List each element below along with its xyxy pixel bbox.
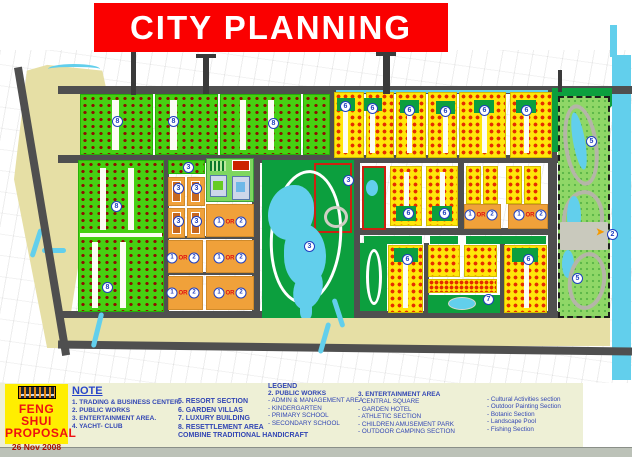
proposal-date: 26 Nov 2008 [5,442,68,452]
mixed-use-block [168,276,203,310]
text-line: 1. TRADING & BUSINESS CENTER. [72,399,181,407]
text-line: - Outdoor Painting Section [487,403,561,410]
garden-villa-block [483,166,498,204]
camping-path [366,249,382,305]
text-line: COMBINE TRADITIONAL HANDICRAFT [178,432,308,441]
text-line: - Fishing Section [487,426,561,433]
text-line: - Cultural Activities section [487,396,561,403]
school-pool [236,182,245,192]
footpath [268,100,274,150]
school-yard [213,181,223,190]
villa-green-court [512,248,538,262]
proposal-title-line1: FENG SHUI [5,403,68,427]
proposal-title-line2: PROPOSAL [5,427,68,439]
resettlement-block [303,94,330,155]
stadium-pool [366,180,378,196]
footpath [343,111,348,153]
villa-green-court [394,248,418,262]
canal-top-segment [610,25,617,57]
garden-villa-block [466,166,481,204]
proposal-box: FENG SHUI PROPOSAL 26 Nov 2008 [5,384,68,444]
tennis-court [191,181,200,202]
legend-group-entertainment: 3. ENTERTAINMENT AREA - CENTRAL SQUARE- … [358,391,455,435]
sand-strip-southeast [558,316,610,346]
footpath [407,113,412,153]
villa-green-court [516,100,536,113]
note-column-1: 1. TRADING & BUSINESS CENTER.2. PUBLIC W… [72,399,181,431]
central-park [262,160,354,318]
note-section: NOTE 1. TRADING & BUSINESS CENTER.2. PUB… [72,385,181,431]
lake-outlet [300,300,312,318]
footpath [440,172,445,206]
legend-group-resort-items: - Cultural Activities section- Outdoor P… [487,396,561,433]
central-square-ring [324,206,348,228]
garden-villa-block [464,245,497,277]
green-strip [466,236,546,244]
footpath [80,233,162,237]
resettlement-block [220,94,301,155]
ferry-arrow-icon: ➤ [596,228,604,238]
tennis-court [172,181,181,202]
kindergarten-building [232,160,250,171]
text-line: - ADMIN & MANAGEMENT AREA [268,397,363,404]
footpath [128,168,134,230]
city-planning-slide: CITY PLANNING [0,0,632,457]
legend-panel-right-gap [583,383,632,447]
text-line: - CHILDREN AMUSEMENT PARK [358,421,455,428]
luxury-building-rows [428,279,497,293]
legend-group-items: - ADMIN & MANAGEMENT AREA- KINDERGARTEN-… [268,397,363,427]
legend-group-title: 2. PUBLIC WORKS [268,390,363,397]
footpath [170,100,177,150]
text-line: - OUTDOOR CAMPING SECTION [358,428,455,435]
text-line: - SECONDARY SCHOOL [268,420,363,427]
tower-pole [383,54,390,94]
garden-villa-block [506,166,522,204]
tennis-court [172,212,181,234]
text-line: - Landscape Pool [487,418,561,425]
landscape-pond [448,297,476,310]
road-east-cross [358,228,556,235]
footpath [524,262,529,308]
garden-villa-block [428,245,460,277]
legend-group-public-works: 2. PUBLIC WORKS - ADMIN & MANAGEMENT ARE… [268,390,363,427]
villa-green-court [432,206,452,221]
villa-green-court [436,101,455,114]
villa-green-court [337,98,355,111]
footpath [524,113,529,153]
footpath [100,168,106,230]
villa-green-court [400,100,419,113]
footpath [443,114,448,153]
tennis-court [191,212,200,234]
bottom-bar [0,447,632,457]
villa-green-court [474,100,494,113]
footpath [403,262,408,308]
legend-heading: LEGEND [268,383,363,390]
tower-pole [203,56,209,94]
note-heading: NOTE [72,385,181,397]
text-line: 2. PUBLIC WORKS [72,407,181,415]
footpath [482,113,487,153]
footpath [92,242,98,308]
text-line: 3. ENTERTAINMENT AREA. [72,415,181,423]
footpath [404,172,409,206]
footpath [370,111,375,153]
footpath [120,242,126,308]
text-line: - GARDEN HOTEL [358,406,455,413]
green-strip [430,236,458,244]
mixed-use-block [508,204,548,229]
river-east [612,55,631,380]
resettlement-block [155,94,218,155]
athletic-stadium [362,166,386,230]
text-line: 4. YACHT- CLUB [72,423,181,431]
tower-pole [558,70,562,92]
mixed-use-block [206,204,254,237]
legend-section: LEGEND 2. PUBLIC WORKS - ADMIN & MANAGEM… [268,383,363,427]
footpath [240,100,246,150]
text-line: - KINDERGARTEN [268,405,363,412]
footpath [112,100,119,150]
text-line: - ATHLETIC SECTION [358,413,455,420]
tower-cap [196,54,216,58]
mixed-use-block [206,276,254,310]
villa-green-court [396,206,416,221]
camping-green [360,243,387,311]
legend-group-title: 3. ENTERTAINMENT AREA [358,391,455,398]
text-line: - CENTRAL SQUARE [358,398,455,405]
company-logo [18,386,56,399]
resort-section [558,96,610,318]
mixed-use-block [206,240,254,273]
text-line: - PRIMARY SCHOOL [268,412,363,419]
green-strip [364,236,422,244]
athletic-strip [168,160,205,174]
garden-villa-block [524,166,541,204]
mixed-use-block [168,240,203,273]
mixed-use-block [464,204,501,229]
admin-area [210,161,226,171]
page-title: CITY PLANNING [130,9,412,47]
canal-curve-northwest [48,64,100,74]
tower-cap [376,52,396,56]
legend-group-items: - CENTRAL SQUARE- GARDEN HOTEL- ATHLETIC… [358,398,455,435]
title-banner: CITY PLANNING [94,3,448,52]
villa-green-court [364,98,382,111]
text-line: - Botanic Section [487,411,561,418]
